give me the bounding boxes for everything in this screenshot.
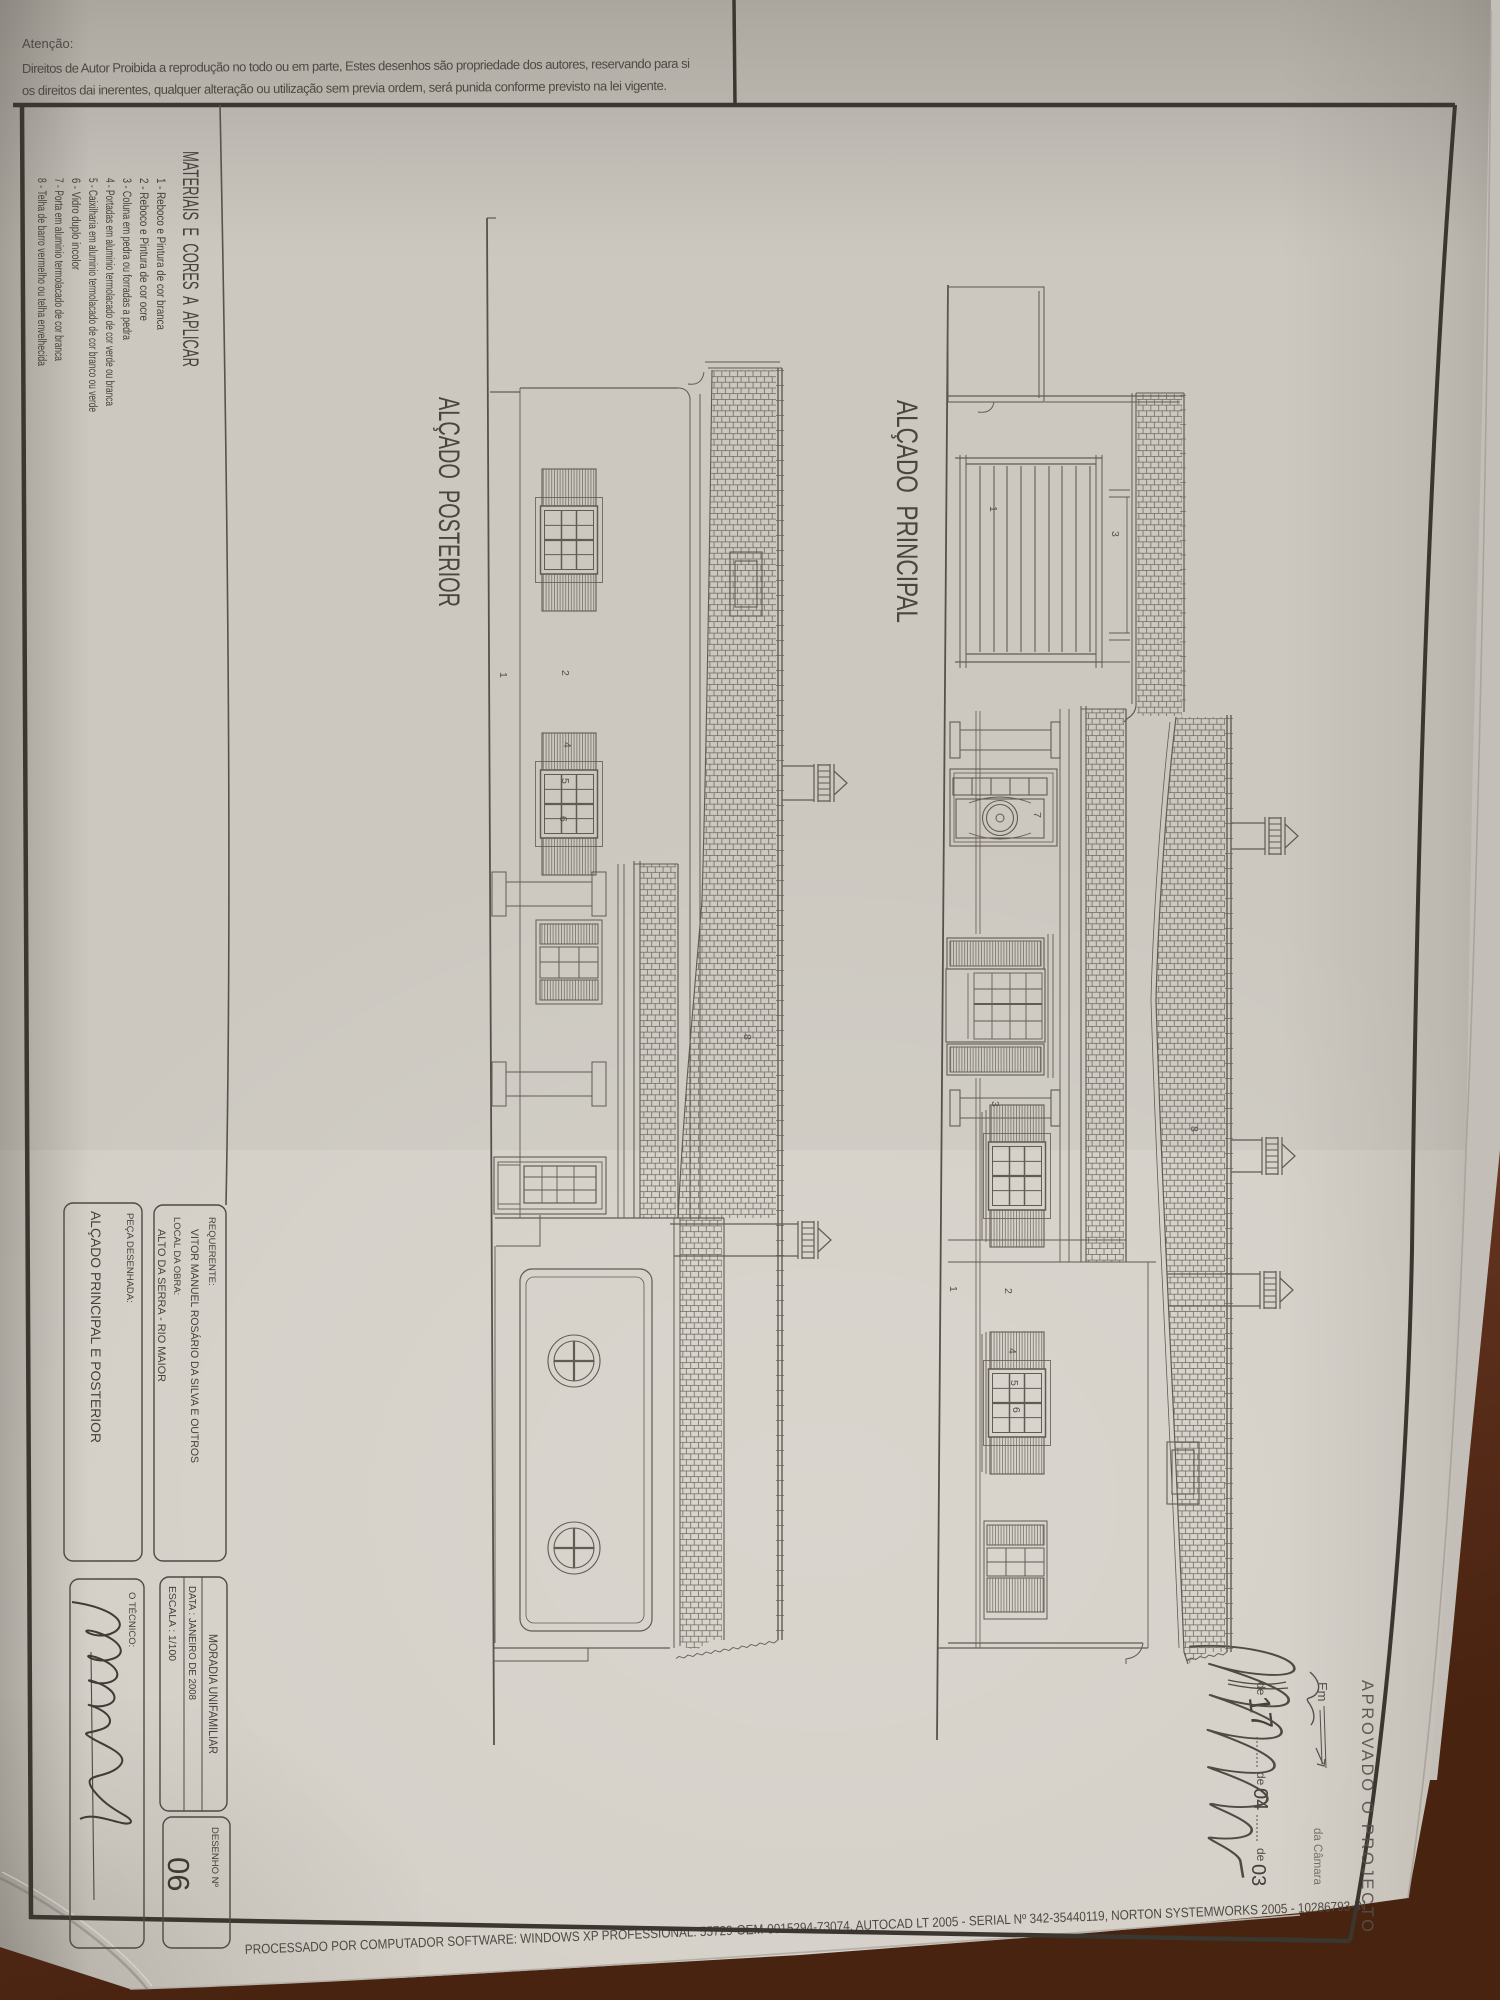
svg-text:1 - Reboco e Pintura de cor br: 1 - Reboco e Pintura de cor branca [154,178,166,331]
svg-text:8: 8 [741,1034,753,1040]
svg-text:MATERIAIS E CORES A APLICA: MATERIAIS E CORES A APLICAR [178,151,203,367]
svg-text:MORADIA UNIFAMILIAR: MORADIA UNIFAMILIAR [206,1634,220,1754]
svg-text:ALÇADO PRINCIPAL: ALÇADO PRINCIPAL [890,400,923,623]
svg-text:03: 03 [1247,1864,1269,1886]
svg-text:LOCAL DA OBRA:: LOCAL DA OBRA: [171,1217,182,1295]
svg-text:7: 7 [1031,812,1043,818]
svg-text:de: de [1254,1848,1268,1862]
svg-text:6 - Vidro duplo incolor: 6 - Vidro duplo incolor [69,178,81,270]
svg-text:de: de [1254,1772,1268,1786]
svg-text:5: 5 [559,778,571,784]
svg-text:3 - Coluna em pedra ou forrada: 3 - Coluna em pedra ou forradas a pedra [120,178,132,340]
svg-text:APROVADO O PROJECTO: APROVADO O PROJECTO [1358,1680,1376,1932]
svg-text:DESENHO Nº: DESENHO Nº [209,1827,220,1887]
svg-text:5 - Caixilharia em aluminio te: 5 - Caixilharia em aluminio termolacado … [86,178,98,412]
svg-text:2: 2 [1002,1288,1014,1294]
svg-text:ALÇADO PRINCIPAL E POSTERIOR: ALÇADO PRINCIPAL E POSTERIOR [88,1211,103,1443]
svg-text:ALTO DA SERRA - RIO MAIOR: ALTO DA SERRA - RIO MAIOR [155,1229,167,1382]
svg-text:8: 8 [1188,1126,1200,1132]
svg-text:5: 5 [1008,1380,1020,1386]
svg-text:3: 3 [1109,531,1121,537]
svg-text:PEÇA DESENHADA:: PEÇA DESENHADA: [124,1213,135,1303]
svg-text:06: 06 [161,1857,196,1891]
svg-text:17: 17 [1242,1694,1279,1731]
svg-text:DATA : JANEIRO DE 2008: DATA : JANEIRO DE 2008 [186,1586,198,1700]
svg-text:8 - Telha de barro vermelho ou: 8 - Telha de barro vermelho ou telha env… [35,178,47,366]
svg-text:ALÇADO POSTERIOR: ALÇADO POSTERIOR [432,397,465,607]
svg-text:VITOR MANUEL ROSÁRIO DA SILVA: VITOR MANUEL ROSÁRIO DA SILVA E OUTROS [188,1229,201,1463]
svg-text:7 - Porta em aluminio termolac: 7 - Porta em aluminio termolacado de cor… [52,178,64,361]
svg-text:da Câmara: da Câmara [1311,1828,1323,1885]
svg-text:3: 3 [989,1101,1001,1107]
svg-text:2: 2 [559,670,571,676]
svg-text:ESCALA : 1/100: ESCALA : 1/100 [166,1586,178,1661]
svg-text:6: 6 [1010,1407,1022,1413]
svg-text:6: 6 [557,816,569,822]
svg-text:1: 1 [497,672,509,678]
svg-text:O TÉCNICO:: O TÉCNICO: [126,1592,137,1647]
svg-text:4: 4 [1006,1348,1018,1354]
svg-text:4: 4 [561,742,573,748]
svg-text:2 - Reboco e Pintura de cor oc: 2 - Reboco e Pintura de cor ocre [137,178,149,321]
svg-text:REQUERENTE:: REQUERENTE: [206,1217,217,1286]
svg-text:1: 1 [947,1286,959,1292]
svg-text:4 - Portadas em aluminio termo: 4 - Portadas em aluminio termolacado de … [103,178,115,406]
svg-text:1: 1 [987,506,999,512]
